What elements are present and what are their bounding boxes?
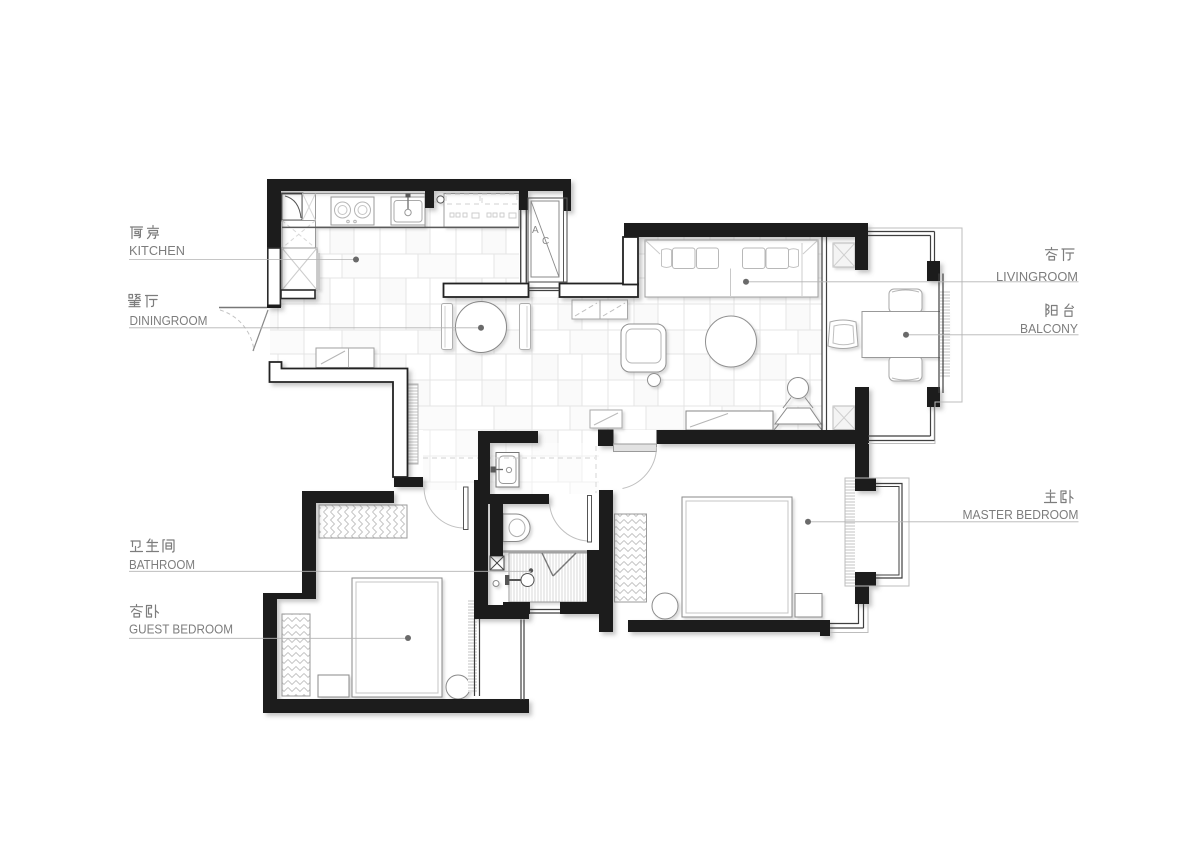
svg-text:MASTER BEDROOM: MASTER BEDROOM (963, 507, 1079, 522)
svg-text:GUEST BEDROOM: GUEST BEDROOM (129, 622, 233, 637)
svg-text:A: A (532, 225, 539, 236)
svg-text:C: C (542, 236, 549, 247)
svg-text:LIVINGROOM: LIVINGROOM (996, 269, 1078, 284)
svg-text:BALCONY: BALCONY (1020, 321, 1078, 336)
svg-text:DININGROOM: DININGROOM (130, 313, 208, 328)
svg-text:KITCHEN: KITCHEN (129, 243, 185, 258)
svg-text:BATHROOM: BATHROOM (129, 557, 195, 572)
